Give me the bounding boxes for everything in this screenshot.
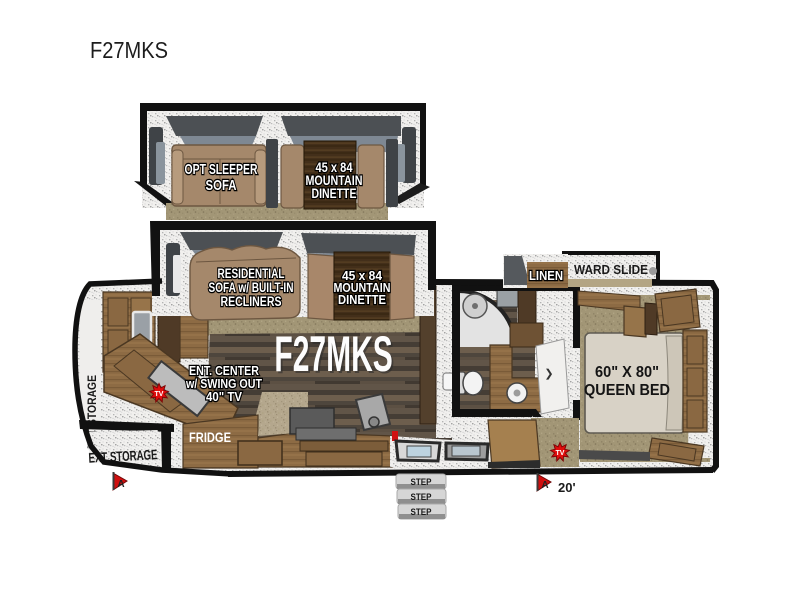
svg-text:WARD SLIDE: WARD SLIDE <box>574 262 648 277</box>
svg-text:DINETTE: DINETTE <box>338 292 386 307</box>
svg-text:LINEN: LINEN <box>529 268 563 283</box>
svg-text:SOFA w/ BUILT-IN: SOFA w/ BUILT-IN <box>209 280 294 295</box>
svg-text:SOFA: SOFA <box>206 177 237 194</box>
svg-text:QUEEN BED: QUEEN BED <box>584 382 670 399</box>
svg-text:FRIDGE: FRIDGE <box>189 430 231 445</box>
svg-text:F27MKS: F27MKS <box>90 37 168 63</box>
svg-text:40" TV: 40" TV <box>206 389 242 404</box>
svg-text:A: A <box>117 479 124 490</box>
svg-text:A: A <box>541 480 548 491</box>
svg-text:TV: TV <box>155 391 164 398</box>
svg-text:DINETTE: DINETTE <box>312 186 357 201</box>
svg-text:RECLINERS: RECLINERS <box>221 294 282 309</box>
svg-text:STEP: STEP <box>411 477 433 488</box>
svg-text:20': 20' <box>558 480 576 495</box>
svg-text:STEP: STEP <box>411 507 433 518</box>
svg-text:OPT SLEEPER: OPT SLEEPER <box>185 161 258 178</box>
svg-text:❯: ❯ <box>544 368 553 380</box>
svg-text:60" X 80": 60" X 80" <box>595 364 659 381</box>
svg-text:STEP: STEP <box>411 492 433 503</box>
svg-text:F27MKS: F27MKS <box>274 326 392 382</box>
svg-text:RESIDENTIAL: RESIDENTIAL <box>218 266 285 281</box>
svg-text:TV: TV <box>556 450 565 457</box>
